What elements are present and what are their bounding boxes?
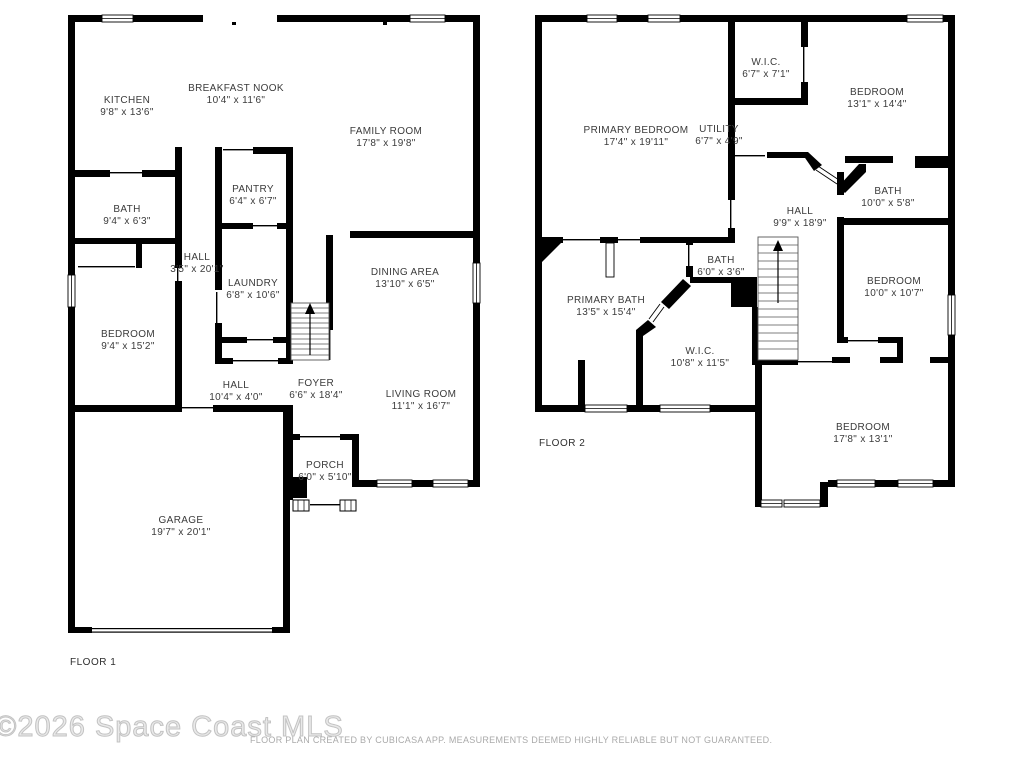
window-icon xyxy=(898,480,933,487)
floor1-walls xyxy=(68,15,480,633)
floorplan-drawing xyxy=(0,0,1024,768)
window-icon xyxy=(410,15,445,22)
door-leaf-icon xyxy=(606,243,614,277)
floorplan-page: KITCHEN9'8" x 13'6"BREAKFAST NOOK10'4" x… xyxy=(0,0,1024,768)
floor2-walls xyxy=(535,15,955,507)
floor1-openings xyxy=(78,149,341,633)
porch-posts xyxy=(293,500,356,511)
floor1-windows xyxy=(68,15,480,487)
post-icon xyxy=(293,500,309,511)
window-icon xyxy=(433,480,468,487)
window-icon xyxy=(837,480,875,487)
post-icon xyxy=(340,500,356,511)
window-icon xyxy=(585,405,627,412)
window-icon xyxy=(102,15,133,22)
window-icon xyxy=(660,405,710,412)
floor2-openings xyxy=(563,47,878,362)
window-icon xyxy=(784,500,820,507)
stairs-icon-floor1 xyxy=(291,303,329,360)
floor2-label: FLOOR 2 xyxy=(539,438,585,449)
window-icon xyxy=(907,15,943,22)
disclaimer: FLOOR PLAN CREATED BY CUBICASA APP. MEAS… xyxy=(250,735,750,745)
window-icon xyxy=(377,480,412,487)
window-icon xyxy=(761,500,782,507)
window-icon xyxy=(948,295,955,335)
window-icon xyxy=(68,275,75,307)
window-icon xyxy=(587,15,617,22)
window-icon xyxy=(648,15,680,22)
stairs-icon-floor2 xyxy=(758,237,798,360)
floor1-label: FLOOR 1 xyxy=(70,657,116,668)
window-icon xyxy=(473,263,480,303)
